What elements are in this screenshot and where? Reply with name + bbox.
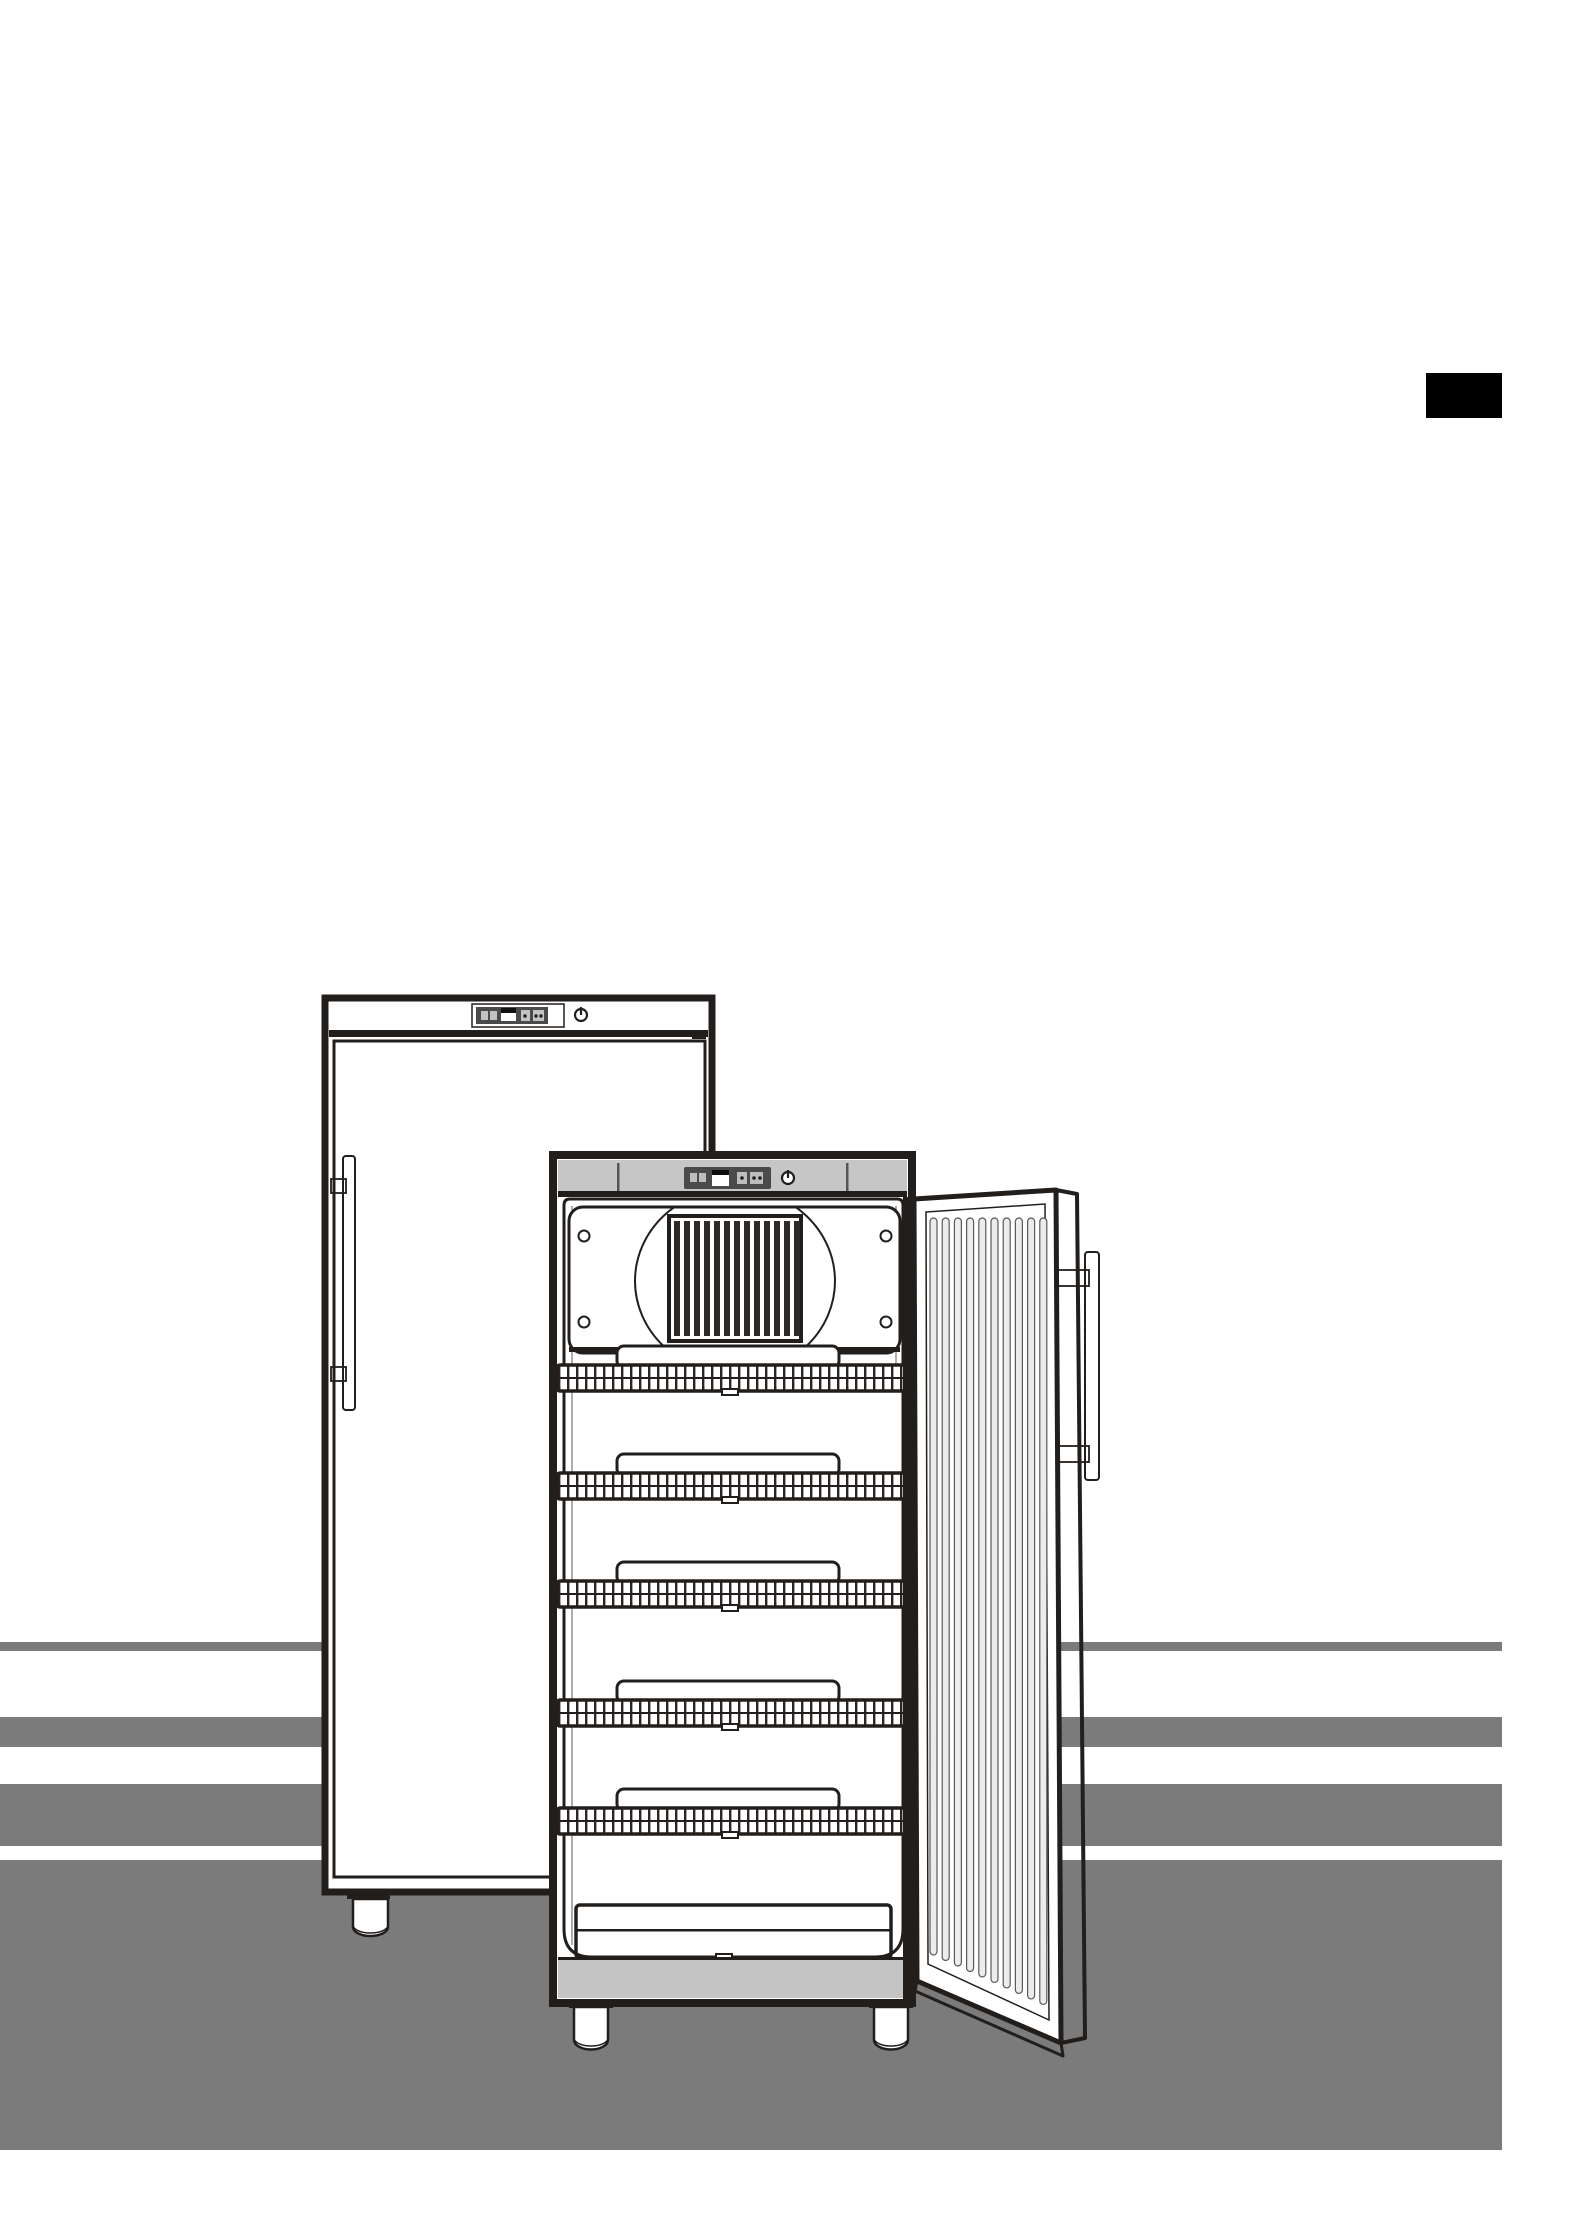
light-button-icon <box>758 1176 762 1180</box>
closed-unit-foot <box>347 1889 390 1936</box>
vent-slat <box>674 1221 680 1336</box>
shelf-notch <box>722 1389 738 1395</box>
plinth-top-line <box>558 1957 907 1960</box>
open-refrigerator <box>553 1155 1099 2056</box>
vent-slat <box>764 1221 770 1336</box>
door-rib <box>967 1218 974 1971</box>
vent-slat <box>774 1221 780 1336</box>
vent-slat <box>724 1221 730 1336</box>
display-header <box>712 1170 729 1175</box>
door-outer-edge <box>1056 1190 1085 2043</box>
closed-unit-hinge-mark <box>692 1030 706 1039</box>
adjustable-foot <box>569 1999 613 2050</box>
band-seam <box>617 1163 620 1191</box>
shelf-notch <box>722 1724 738 1730</box>
display-header <box>501 1008 516 1013</box>
up-button <box>690 1173 697 1182</box>
vent-slat <box>794 1221 800 1336</box>
top-band-bottom-line <box>558 1191 907 1197</box>
screw-icon <box>579 1317 590 1328</box>
shelf-midrail <box>559 1820 905 1822</box>
door-rib <box>942 1218 949 1960</box>
shelf-midrail <box>559 1377 905 1379</box>
door-rib <box>991 1218 998 1982</box>
shelf-midrail <box>559 1712 905 1714</box>
manual-page <box>0 0 1576 2230</box>
up-button <box>481 1011 488 1020</box>
door-rib <box>954 1218 961 1966</box>
down-button <box>699 1173 706 1182</box>
shelf-notch <box>722 1605 738 1611</box>
down-button <box>490 1011 497 1020</box>
light-button-icon <box>752 1176 756 1180</box>
shelf-midrail <box>559 1485 905 1487</box>
closed-unit-band-divider <box>329 1030 708 1037</box>
adjustable-foot <box>869 1999 913 2050</box>
foot-bracket <box>347 1889 390 1899</box>
door-rib <box>930 1218 937 1955</box>
door-rib <box>1028 1218 1035 1999</box>
door-rib <box>1015 1218 1022 1993</box>
shelf-notch <box>722 1497 738 1503</box>
vent-slat <box>694 1221 700 1336</box>
vent-slat <box>704 1221 710 1336</box>
band-seam <box>846 1163 849 1191</box>
screw-icon <box>579 1231 590 1242</box>
open-door <box>914 1190 1099 2056</box>
appliance-illustration <box>0 0 1576 2230</box>
vent-slat <box>784 1221 790 1336</box>
screw-icon <box>881 1231 892 1242</box>
vent-slat <box>744 1221 750 1336</box>
alarm-button-icon <box>740 1176 744 1180</box>
vent-slat <box>684 1221 690 1336</box>
vent-slat <box>734 1221 740 1336</box>
alarm-button-icon <box>523 1014 526 1017</box>
door-rib <box>1040 1218 1047 2004</box>
light-button-icon <box>539 1014 542 1017</box>
door-rib <box>1003 1218 1010 1988</box>
floor-grille-midrail <box>576 1929 891 1932</box>
shelf-notch <box>722 1832 738 1838</box>
shelf-midrail <box>559 1593 905 1595</box>
vent-slat <box>714 1221 720 1336</box>
plinth <box>558 1957 907 1998</box>
screw-icon <box>881 1317 892 1328</box>
light-button-icon <box>534 1014 537 1017</box>
vent-slat <box>754 1221 760 1336</box>
door-rib <box>979 1218 986 1977</box>
cabinet-corner-edge <box>903 1197 909 2003</box>
